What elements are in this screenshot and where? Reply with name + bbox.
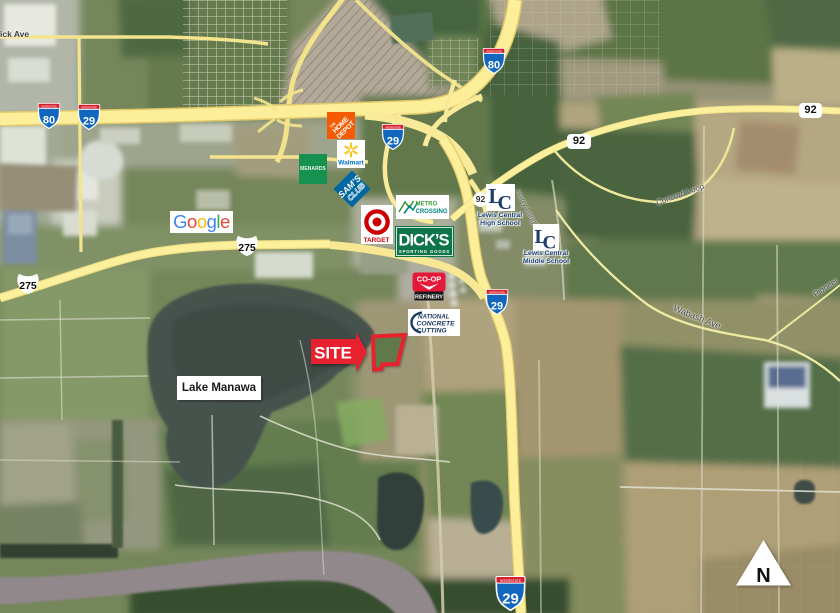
svg-text:INTERSTATE: INTERSTATE [486, 49, 502, 53]
svg-text:275: 275 [238, 242, 256, 254]
svg-text:CROSSING: CROSSING [416, 209, 448, 215]
svg-text:TARGET: TARGET [364, 237, 390, 244]
svg-text:CUTTING: CUTTING [417, 328, 448, 335]
svg-text:N: N [756, 565, 770, 587]
svg-text:80: 80 [43, 115, 55, 127]
svg-text:INTERSTATE: INTERSTATE [489, 290, 505, 294]
svg-text:SPORTING GOODS: SPORTING GOODS [399, 249, 450, 254]
svg-text:29: 29 [491, 301, 503, 313]
svg-text:REFINERY: REFINERY [415, 295, 443, 301]
svg-text:INTERSTATE: INTERSTATE [41, 104, 57, 108]
svg-text:SITE: SITE [314, 344, 352, 363]
svg-text:CO-OP: CO-OP [417, 275, 442, 284]
svg-text:INTERSTATE: INTERSTATE [500, 579, 522, 583]
svg-text:C: C [543, 233, 557, 252]
svg-text:80: 80 [488, 60, 500, 72]
svg-text:CONCRETE: CONCRETE [417, 321, 456, 328]
svg-text:29: 29 [83, 116, 95, 128]
svg-text:Walmart: Walmart [338, 160, 365, 167]
svg-text:NATIONAL: NATIONAL [418, 314, 450, 321]
svg-text:C: C [498, 192, 512, 211]
svg-text:29: 29 [502, 592, 518, 608]
svg-text:DICK’S: DICK’S [399, 232, 450, 250]
svg-text:275: 275 [19, 280, 37, 292]
svg-text:INTERSTATE: INTERSTATE [385, 125, 401, 129]
svg-text:29: 29 [387, 136, 399, 148]
svg-text:METRO: METRO [416, 202, 438, 208]
svg-text:INTERSTATE: INTERSTATE [81, 105, 97, 109]
